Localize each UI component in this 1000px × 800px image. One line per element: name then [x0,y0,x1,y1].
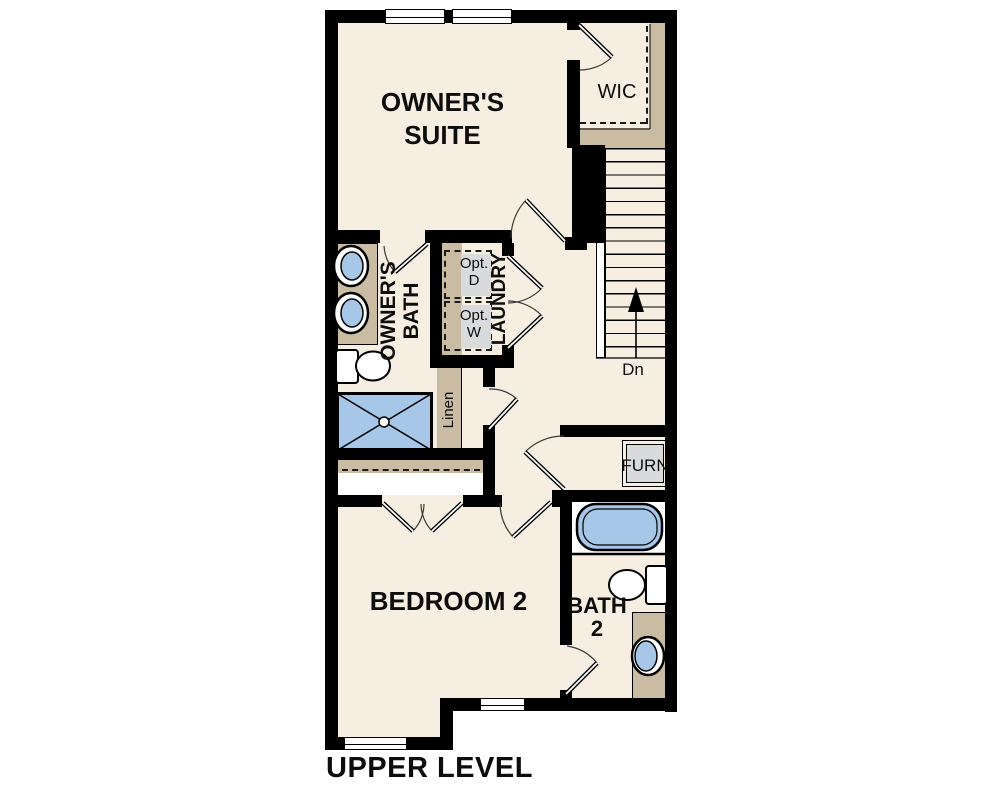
wall-left [325,10,338,750]
bath2-line1: BATH [560,594,634,617]
closet-floor [338,473,483,495]
owners-suite-line1: OWNER'S [340,86,545,119]
wall-bottom-right [440,698,677,711]
wall-bath2-left-stub [560,690,572,702]
bath2-vanity [632,612,668,698]
label-linen-closet: Linen [439,378,459,442]
floor-plan: OWNER'S SUITE WIC OWNER'S BATH LAUNDRY O… [0,0,1000,800]
label-optional-dryer: Opt. D [450,255,498,289]
wic-rod-line-v [646,26,648,124]
opt-washer-line2: W [450,324,498,341]
floor-bedroom-ext [338,698,440,737]
window-bedroom2 [344,737,407,750]
wall-stairwell [572,145,605,243]
wall-right [665,10,677,712]
closet-shelf [338,460,483,473]
shower-pan [336,392,433,452]
wall-suite-bottom-a [338,230,380,243]
wall-bedroom-north-b [463,495,502,507]
plan-title: UPPER LEVEL [326,752,533,785]
closet-rod-line [342,469,480,471]
room-label-owners-suite: OWNER'S SUITE [340,86,545,152]
wic-rod-line-h [580,122,646,124]
room-label-laundry: LAUNDRY [488,234,512,364]
owners-bath-line2: BATH [400,241,423,381]
wall-suite-wic [567,60,580,148]
wall-bath-closet [338,448,483,460]
opt-dryer-line1: Opt. [450,255,498,272]
bath2-line2: 2 [560,617,634,640]
opt-washer-line1: Opt. [450,307,498,324]
opt-dryer-line2: D [450,272,498,289]
room-label-owners-bath: OWNER'S BATH [377,241,425,381]
wall-bedroom-north-a [338,495,382,507]
wall-bath-laundry [430,230,442,362]
stair-treads [605,148,665,358]
room-label-bath2: BATH 2 [560,594,634,640]
label-furnace: FURN [618,456,672,476]
window-suite-2 [452,9,512,24]
owners-suite-line2: SUITE [340,119,545,152]
window-suite-1 [385,9,445,24]
wall-wic-stub [567,23,580,30]
wall-furn-top [560,425,672,437]
window-rear [480,698,525,711]
wall-bath2-top [552,490,672,502]
owners-bath-line1: OWNER'S [377,241,400,381]
room-label-wic: WIC [593,81,641,104]
room-label-bedroom2: BEDROOM 2 [346,586,551,617]
stair-rail [596,240,605,358]
tub-alcove [572,502,665,553]
label-optional-washer: Opt. W [450,307,498,341]
owners-bath-vanity [334,243,378,345]
label-stairs-down: Dn [611,360,655,380]
wall-linen-stub-top [483,368,495,387]
